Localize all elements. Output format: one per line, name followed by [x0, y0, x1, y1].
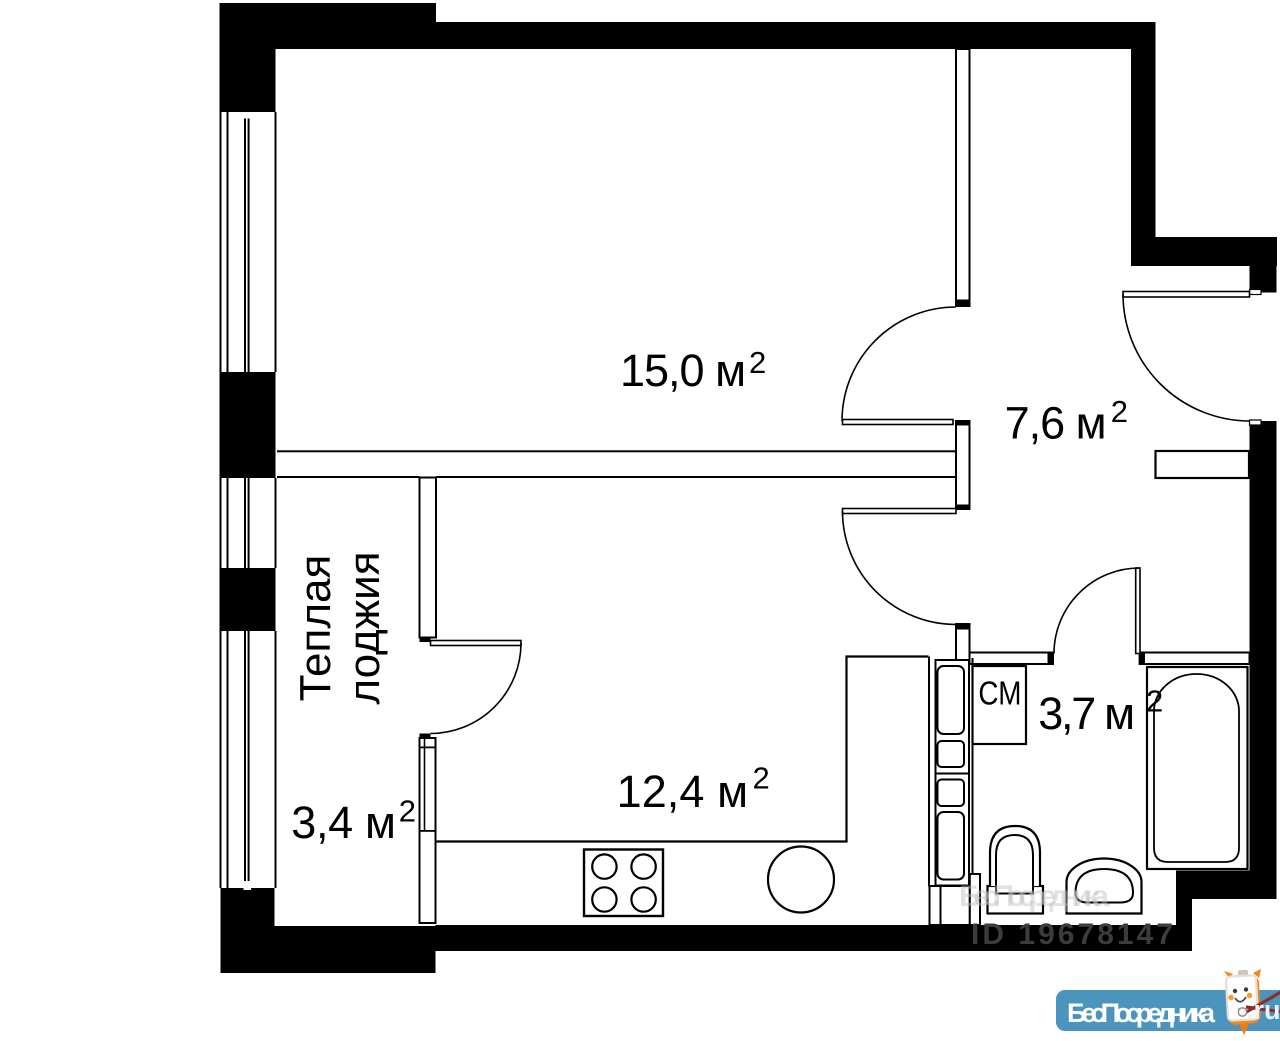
svg-text:2: 2: [399, 793, 416, 828]
svg-text:2: 2: [1111, 394, 1128, 429]
svg-text:СМ: СМ: [978, 675, 1021, 712]
svg-text:БесПосредника: БесПосредника: [959, 880, 1109, 913]
svg-text:7,6 м: 7,6 м: [1005, 397, 1107, 448]
svg-text:2: 2: [1146, 683, 1163, 718]
svg-text:12,4 м: 12,4 м: [617, 766, 748, 817]
svg-text:ID 19678147: ID 19678147: [971, 918, 1173, 951]
svg-text:БесПосредника: БесПосредника: [1067, 998, 1216, 1028]
svg-text:2: 2: [753, 761, 770, 796]
svg-text:Теплая: Теплая: [291, 555, 340, 702]
svg-text:3,7 м: 3,7 м: [1038, 688, 1135, 739]
svg-text:15,0 м: 15,0 м: [620, 345, 746, 396]
svg-text:лоджия: лоджия: [340, 551, 389, 704]
svg-text:.ru: .ru: [1246, 995, 1280, 1025]
svg-text:2: 2: [749, 345, 766, 380]
svg-text:3,4 м: 3,4 м: [291, 797, 396, 848]
